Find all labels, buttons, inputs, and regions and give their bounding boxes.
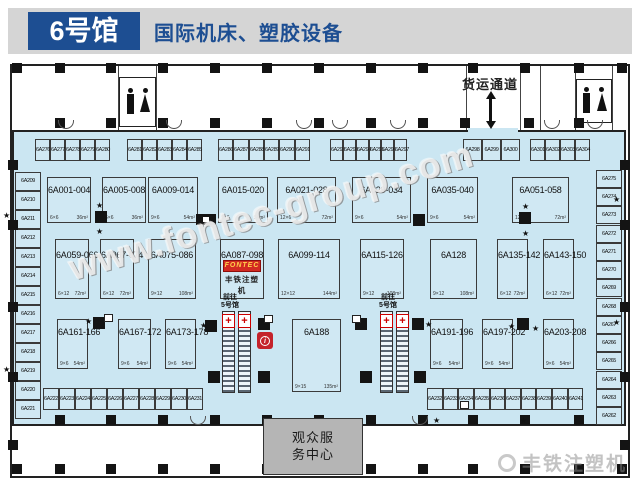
booth-id: 6A283 [158, 140, 171, 160]
booth: 6A099-114 12×12144m² [278, 239, 340, 299]
booth-id: 6A232 [428, 389, 442, 409]
booth-id: 6A296 [382, 140, 393, 160]
booth: 6A241 [568, 388, 583, 410]
booth: 6A219 [15, 362, 41, 381]
booth-id: 6A217 [16, 325, 40, 342]
pillar-icon [314, 118, 324, 128]
male-restroom-icon [125, 88, 135, 116]
booth: 6A292 [330, 139, 343, 161]
booth: 6A238 [521, 388, 536, 410]
pillar-icon [418, 118, 428, 128]
pillar-icon [210, 63, 220, 73]
sq-icon [258, 371, 270, 383]
pillar-icon [524, 118, 534, 128]
booth-id: 6A215 [16, 287, 40, 304]
booth: 6A265 [596, 352, 622, 370]
booth-id: 6A264 [597, 372, 621, 388]
sq-icon [360, 371, 372, 383]
pillar-icon [106, 118, 116, 128]
booth-id: 6A067-074 [101, 250, 133, 260]
floorplan-page: 6号馆 国际机床、塑胶设备 货运通道 6A001-004 6×636m² 6A0… [0, 0, 640, 492]
booth: 6A214 [15, 267, 41, 286]
booth-size: 9×654m² [168, 361, 193, 367]
hall-subtitle: 国际机床、塑胶设备 [154, 17, 343, 46]
fontec-exhibitor-mark: FONTEC 丰铁注塑机 [223, 260, 261, 296]
pillar-icon [55, 464, 65, 474]
to-hall5-label: 前往5号馆 [370, 294, 406, 311]
pillar-icon [8, 440, 18, 450]
booth-id: 6A295 [370, 140, 380, 160]
booth: 6A293 [343, 139, 356, 161]
pillar-icon [620, 302, 630, 312]
booth: 6A273 [596, 206, 622, 224]
booth-id: 6A075-086 [149, 250, 195, 260]
pillar-icon [262, 63, 272, 73]
booth-id: 6A218 [16, 344, 40, 361]
booth-id: 6A265 [597, 353, 621, 369]
booth: 6A075-086 9×12108m² [148, 239, 196, 299]
booth: 6A284 [172, 139, 187, 161]
booth: 6A281 [127, 139, 142, 161]
pillar-icon [468, 415, 478, 425]
booth-id: 6A277 [51, 140, 64, 160]
pillar-icon [366, 415, 376, 425]
star-icon [613, 196, 620, 204]
booth-id: 6A173-178 [166, 327, 195, 337]
booth-id: 6A161-166 [58, 327, 87, 337]
booth-id: 6A051-058 [513, 185, 568, 195]
booth-id: 6A278 [66, 140, 79, 160]
booth: 6A287 [233, 139, 249, 161]
star-icon [85, 318, 92, 326]
booth-id: 6A263 [597, 390, 621, 406]
pillar-icon [314, 63, 324, 73]
booth: 6A213 [15, 248, 41, 267]
booth: 6A276 [35, 139, 50, 161]
booth: 6A224 [75, 388, 91, 410]
booth-id: 6A203-208 [544, 327, 573, 337]
booth-size: 9×654m² [433, 361, 460, 367]
booth-id: 6A009-014 [149, 185, 197, 195]
booth-id: 6A015-020 [219, 185, 267, 195]
header-bar: 6号馆 国际机床、塑胶设备 [8, 8, 632, 54]
cam-icon [196, 214, 216, 225]
pillar-icon [8, 220, 18, 230]
booth-id: 6A303 [561, 140, 574, 160]
to-hall5-label: 前往5号馆 [212, 294, 248, 311]
booth: 6A009-014 9×654m² [148, 177, 198, 223]
arc-icon [587, 120, 603, 128]
booth-id: 6A294 [357, 140, 368, 160]
booth: 6A135-142 6×1272m² [497, 239, 528, 299]
booth: 6A229 [155, 388, 171, 410]
booth: 6A269 [596, 279, 622, 297]
booth: 6A217 [15, 324, 41, 343]
booth: 6A277 [50, 139, 65, 161]
star-icon [425, 321, 432, 329]
booth: 6A289 [264, 139, 279, 161]
pillar-icon [262, 118, 272, 128]
booth: 6A282 [142, 139, 157, 161]
booth-id: 6A235 [475, 389, 489, 409]
sq-icon [519, 212, 531, 224]
booth-size: 9×12108m² [433, 291, 474, 297]
booth-id: 6A293 [344, 140, 355, 160]
sq-icon [414, 371, 426, 383]
booth-id: 6A001-004 [48, 185, 90, 195]
sq-icon [95, 211, 107, 223]
booth: 6A288 [249, 139, 264, 161]
booth: 6A167-172 9×654m² [118, 319, 151, 369]
booth: 6A270 [596, 261, 622, 279]
booth: 6A300 [501, 139, 520, 161]
booth-id: 6A021-028 [278, 185, 335, 195]
booth: 6A227 [123, 388, 139, 410]
booth: 6A297 [394, 139, 407, 161]
booth-id: 6A262 [597, 408, 621, 424]
pillar-icon [574, 118, 584, 128]
booth: 6A001-004 6×636m² [47, 177, 91, 223]
booth: 6A143-150 6×1272m² [543, 239, 574, 299]
booth-id: 6A239 [537, 389, 551, 409]
booth-id: 6A269 [597, 280, 621, 296]
booth-id: 6A212 [16, 230, 40, 247]
booth-id: 6A279 [81, 140, 94, 160]
booth-size: 6×1272m² [500, 291, 525, 297]
aid-icon [396, 314, 409, 328]
booth-size: 12×12144m² [281, 291, 337, 297]
booth-id: 6A221 [16, 401, 40, 418]
booth-id: 6A209 [16, 173, 40, 190]
booth-id: 6A276 [36, 140, 49, 160]
pillar-icon [8, 160, 18, 170]
booth: 6A231 [187, 388, 203, 410]
booth-id: 6A188 [293, 327, 340, 337]
booth: 6A278 [65, 139, 80, 161]
booth: 6A115-126 9×12108m² [360, 239, 404, 299]
box-icon [352, 315, 361, 323]
booth: 6A191-196 9×654m² [430, 319, 463, 369]
booth-size: 9×654m² [355, 215, 408, 221]
booth: 6A161-166 9×654m² [57, 319, 88, 369]
booth-size: 6×636m² [50, 215, 88, 221]
pillar-icon [574, 415, 584, 425]
wall-segment [612, 66, 613, 130]
booth-id: 6A241 [569, 389, 582, 409]
sq-icon [413, 214, 425, 226]
star-icon [532, 325, 539, 333]
booth-id: 6A302 [546, 140, 559, 160]
arc-icon [412, 416, 428, 424]
booth-id: 6A220 [16, 382, 40, 399]
booth: 6A218 [15, 343, 41, 362]
pillar-icon [620, 220, 630, 230]
pillar-icon [418, 63, 428, 73]
booth-id: 6A087-098 [221, 250, 263, 260]
booth-id: 6A284 [173, 140, 186, 160]
arc-icon [166, 120, 182, 128]
star-icon [522, 203, 529, 211]
booth: 6A215 [15, 286, 41, 305]
arc-icon [544, 120, 560, 128]
booth: 6A240 [552, 388, 568, 410]
booth: 6A209 [15, 172, 41, 191]
booth: 6A295 [369, 139, 381, 161]
booth: 6A272 [596, 225, 622, 243]
booth-id: 6A288 [250, 140, 263, 160]
booth-size: 9×654m² [60, 361, 85, 367]
booth-id: 6A268 [597, 299, 621, 315]
booth-size: 9×654m² [485, 361, 510, 367]
booth: 6A005-008 6×636m² [102, 177, 146, 223]
booth-id: 6A135-142 [498, 250, 527, 260]
booth-id: 6A287 [234, 140, 248, 160]
booth-id: 6A167-172 [119, 327, 150, 337]
booth: 6A236 [490, 388, 505, 410]
booth: 6A280 [95, 139, 110, 161]
booth: 6A285 [187, 139, 202, 161]
brand-footer: 丰铁注塑机 [498, 449, 627, 476]
pillar-icon [158, 464, 168, 474]
booth: 6A279 [80, 139, 95, 161]
booth-id: 6A270 [597, 262, 621, 278]
booth: 6A298 [463, 139, 482, 161]
female-restroom-icon [140, 88, 150, 116]
aid-icon [380, 314, 393, 328]
booth-id: 6A228 [140, 389, 154, 409]
booth: 6A021-028 12×672m² [277, 177, 336, 223]
booth-id: 6A240 [553, 389, 567, 409]
booth: 6A304 [575, 139, 590, 161]
booth: 6A212 [15, 229, 41, 248]
booth: 6A264 [596, 371, 622, 389]
star-icon [200, 322, 207, 330]
booth-id: 6A281 [128, 140, 141, 160]
arc-icon [190, 416, 206, 424]
pillar-icon [106, 63, 116, 73]
booth-id: 6A292 [331, 140, 342, 160]
booth-id: 6A298 [464, 140, 481, 160]
booth: 6A220 [15, 381, 41, 400]
pillar-icon [210, 415, 220, 425]
booth: 6A226 [107, 388, 123, 410]
pillar-icon [158, 415, 168, 425]
booth-id: 6A238 [522, 389, 535, 409]
booth: 6A275 [596, 170, 622, 188]
pillar-icon [106, 415, 116, 425]
booth-id: 6A233 [444, 389, 457, 409]
booth: 6A291 [295, 139, 310, 161]
booth-id: 6A304 [576, 140, 589, 160]
booth-id: 6A271 [597, 244, 621, 260]
hall-number-badge: 6号馆 [28, 12, 140, 50]
booth: 6A223 [59, 388, 75, 410]
star-icon [96, 228, 103, 236]
booth: 6A128 9×12108m² [430, 239, 477, 299]
booth-id: 6A237 [506, 389, 520, 409]
booth: 6A015-020 9×654m² [218, 177, 268, 223]
booth: 6A233 [443, 388, 458, 410]
booth: 6A302 [545, 139, 560, 161]
booth: 6A283 [157, 139, 172, 161]
aid-icon [222, 314, 235, 328]
booth: 6A237 [505, 388, 521, 410]
booth-id: 6A299 [483, 140, 500, 160]
pillar-icon [55, 63, 65, 73]
female-restroom-icon [597, 87, 607, 115]
booth-id: 6A301 [531, 140, 544, 160]
booth-id: 6A236 [491, 389, 504, 409]
booth-size: 9×15135m² [295, 384, 338, 390]
pillar-icon [617, 63, 627, 73]
booth: 6A029-034 9×654m² [352, 177, 411, 223]
booth: 6A216 [15, 305, 41, 324]
booth: 6A087-098 FONTEC 丰铁注塑机 [220, 239, 264, 299]
pillar-icon [210, 464, 220, 474]
booth-id: 6A216 [16, 306, 40, 323]
booth-id: 6A290 [280, 140, 294, 160]
booth: 6A228 [139, 388, 155, 410]
up-down-arrow-icon [489, 98, 492, 122]
wall-segment [520, 66, 521, 130]
booth-id: 6A227 [124, 389, 138, 409]
star-icon [96, 202, 103, 210]
star-icon [520, 417, 527, 425]
sq-icon [208, 371, 220, 383]
arc-icon [296, 120, 312, 128]
star-icon [3, 366, 10, 374]
booth-size: 9×654m² [121, 361, 148, 367]
booth: 6A299 [482, 139, 501, 161]
booth-size: 6×1272m² [103, 291, 131, 297]
male-restroom-icon [582, 87, 592, 115]
booth-size: 9×12108m² [151, 291, 193, 297]
star-icon [522, 230, 529, 238]
booth-size: 9×654m² [546, 361, 571, 367]
booth: 6A230 [171, 388, 187, 410]
booth-id: 6A275 [597, 171, 621, 187]
booth: 6A290 [279, 139, 295, 161]
booth-size: 6×1272m² [58, 291, 86, 297]
booth-id: 6A297 [395, 140, 406, 160]
booth-id: 6A213 [16, 249, 40, 266]
booth-id: 6A029-034 [353, 185, 410, 195]
booth: 6A232 [427, 388, 443, 410]
booth: 6A271 [596, 243, 622, 261]
booth-id: 6A005-008 [103, 185, 145, 195]
box-icon [104, 314, 113, 322]
booth-id: 6A128 [431, 250, 476, 260]
pillar-icon [620, 160, 630, 170]
booth-id: 6A143-150 [544, 250, 573, 260]
booth-id: 6A226 [108, 389, 122, 409]
pillar-icon [158, 63, 168, 73]
booth-id: 6A059-066 [56, 250, 88, 260]
sq-icon [412, 318, 424, 330]
booth-id: 6A035-040 [428, 185, 477, 195]
wall-segment [540, 66, 541, 130]
pillar-icon [106, 464, 116, 474]
restroom-right [576, 79, 612, 123]
booth-size: 9×654m² [151, 215, 195, 221]
booth-id: 6A282 [143, 140, 156, 160]
wall-segment [156, 66, 157, 130]
pillar-icon [55, 415, 65, 425]
pillar-icon [12, 63, 22, 73]
arc-icon [390, 120, 406, 128]
pillar-icon [520, 63, 530, 73]
booth: 6A188 9×15135m² [292, 319, 341, 392]
restroom-left [119, 77, 156, 127]
booth-size: 6×1272m² [546, 291, 571, 297]
sq-icon [517, 318, 529, 330]
brand-ring-icon [498, 454, 516, 472]
booth-id: 6A286 [219, 140, 232, 160]
booth-id: 6A224 [76, 389, 90, 409]
booth: 6A268 [596, 298, 622, 316]
booth-id: 6A219 [16, 363, 40, 380]
booth: 6A221 [15, 400, 41, 419]
pillar-icon [418, 464, 428, 474]
fontec-logo: FONTEC [223, 260, 261, 272]
booth: 6A059-066 6×1272m² [55, 239, 89, 299]
booth: 6A263 [596, 389, 622, 407]
pillar-icon [468, 464, 478, 474]
arc-icon [332, 120, 348, 128]
pillar-icon [8, 302, 18, 312]
booth: 6A222 [43, 388, 59, 410]
booth-id: 6A222 [44, 389, 58, 409]
booth-size: 9×654m² [430, 215, 475, 221]
booth: 6A239 [536, 388, 552, 410]
booth-id: 6A211 [16, 211, 40, 228]
booth-size: 12×672m² [280, 215, 333, 221]
pillar-icon [620, 372, 630, 382]
booth-id: 6A099-114 [279, 250, 339, 260]
star-icon [3, 212, 10, 220]
booth-id: 6A291 [296, 140, 309, 160]
booth: 6A301 [530, 139, 545, 161]
booth: 6A303 [560, 139, 575, 161]
booth-id: 6A300 [502, 140, 519, 160]
booth: 6A225 [91, 388, 107, 410]
booth: 6A211 [15, 210, 41, 229]
pillar-icon [468, 63, 478, 73]
booth-id: 6A266 [597, 335, 621, 351]
booth: 6A286 [218, 139, 233, 161]
booth-id: 6A225 [92, 389, 106, 409]
booth: 6A235 [474, 388, 490, 410]
box-icon [264, 315, 273, 323]
booth-id: 6A210 [16, 192, 40, 209]
pillar-icon [460, 118, 470, 128]
booth-id: 6A272 [597, 226, 621, 242]
booth: 6A266 [596, 334, 622, 352]
pillar-icon [210, 118, 220, 128]
booth-id: 6A115-126 [361, 250, 403, 260]
pillar-icon [366, 464, 376, 474]
aid-icon [238, 314, 251, 328]
booth: 6A067-074 6×1272m² [100, 239, 134, 299]
booth-id: 6A273 [597, 207, 621, 223]
booth: 6A296 [381, 139, 394, 161]
booth-id: 6A191-196 [431, 327, 462, 337]
booth-id: 6A280 [96, 140, 109, 160]
pillar-icon [12, 464, 22, 474]
booth-id: 6A229 [156, 389, 170, 409]
booth-id: 6A231 [188, 389, 202, 409]
information-icon: i [257, 332, 273, 349]
